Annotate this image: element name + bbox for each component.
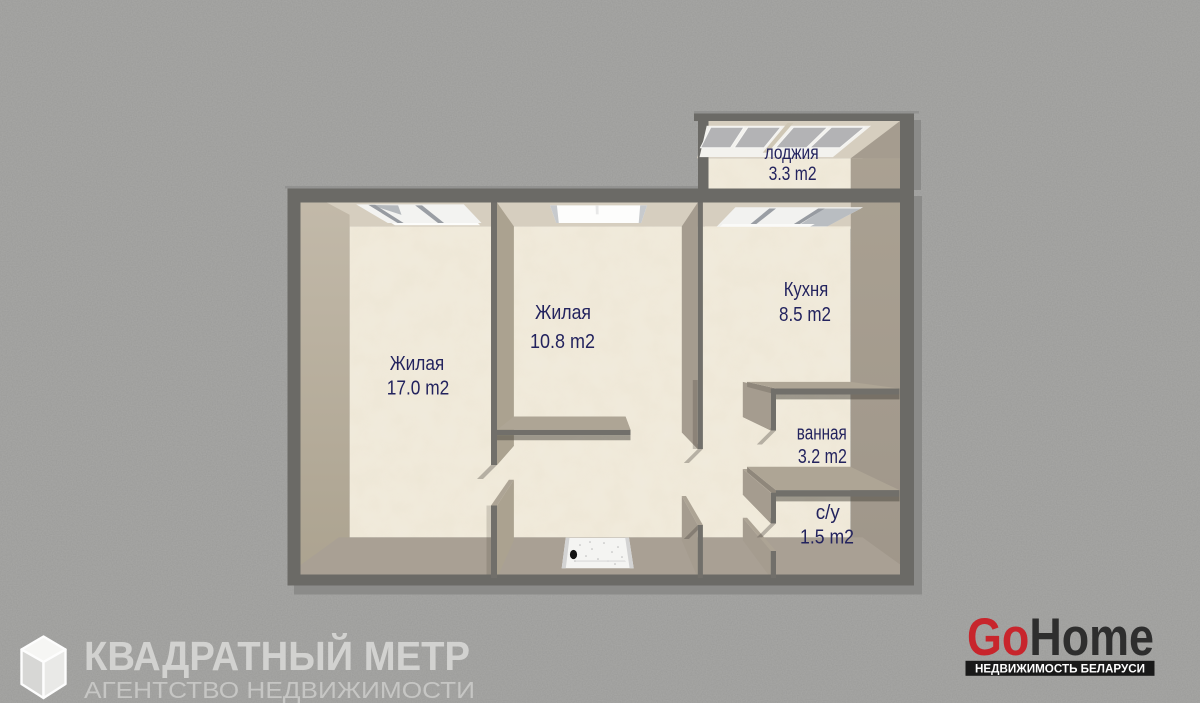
svg-text:10.8 m2: 10.8 m2	[530, 331, 595, 353]
svg-text:8.5 m2: 8.5 m2	[779, 304, 831, 326]
svg-text:17.0 m2: 17.0 m2	[387, 378, 450, 400]
svg-text:Кухня: Кухня	[784, 279, 829, 301]
svg-text:GoHome: GoHome	[967, 608, 1154, 667]
svg-text:КВАДРАТНЫЙ МЕТР: КВАДРАТНЫЙ МЕТР	[84, 633, 470, 679]
svg-text:Жилая: Жилая	[390, 353, 445, 375]
svg-text:с/у: с/у	[816, 502, 841, 524]
svg-text:3.2 m2: 3.2 m2	[798, 446, 847, 468]
svg-text:лоджия: лоджия	[765, 142, 819, 164]
svg-text:1.5 m2: 1.5 m2	[800, 527, 854, 549]
svg-text:Жилая: Жилая	[535, 302, 591, 324]
svg-text:ванная: ванная	[797, 423, 847, 445]
svg-text:НЕДВИЖИМОСТЬ БЕЛАРУСИ: НЕДВИЖИМОСТЬ БЕЛАРУСИ	[975, 663, 1145, 675]
svg-text:АГЕНТСТВО НЕДВИЖИМОСТИ: АГЕНТСТВО НЕДВИЖИМОСТИ	[84, 677, 475, 703]
svg-text:3.3 m2: 3.3 m2	[769, 163, 817, 185]
